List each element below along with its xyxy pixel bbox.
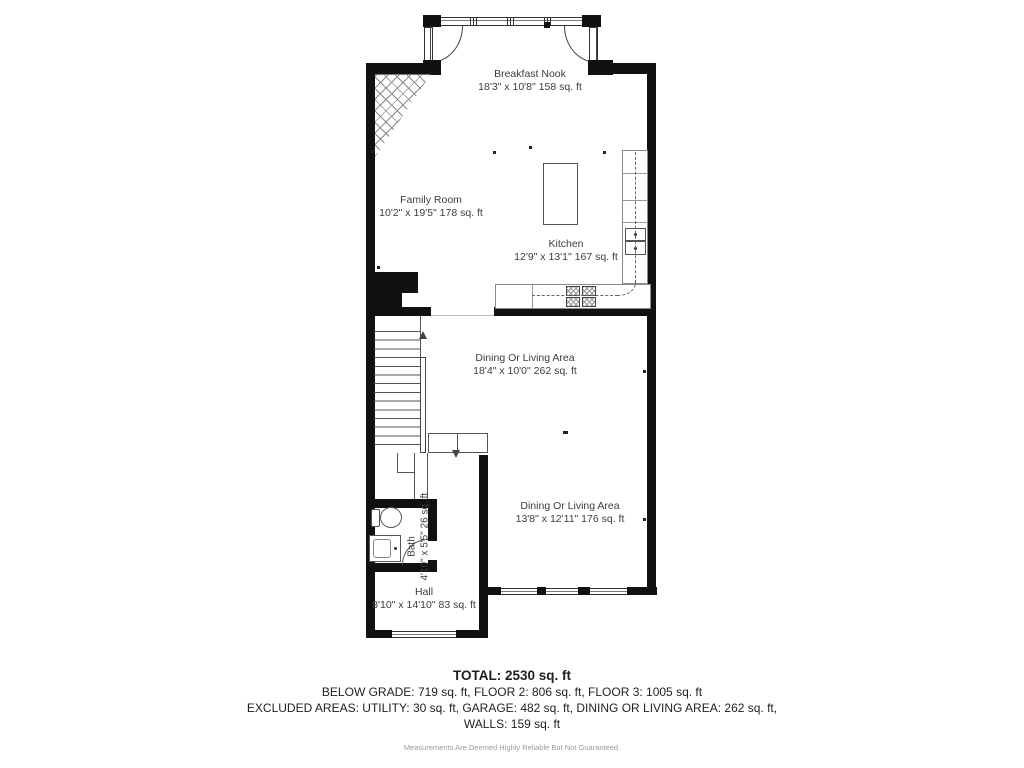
- summary-excluded: EXCLUDED AREAS: UTILITY: 30 sq. ft, GARA…: [0, 700, 1024, 716]
- kitchen-island: [543, 163, 578, 225]
- upper-cabinet-dashed-line: [635, 152, 636, 283]
- wall-marker: [643, 370, 646, 373]
- wall-dining-mullion: [578, 587, 590, 595]
- wall-hall-bottom-right: [456, 630, 488, 638]
- upper-cabinet-dashed-line: [532, 295, 618, 296]
- wall-dining-bottom-right: [627, 587, 657, 595]
- area-summary: TOTAL: 2530 sq. ft BELOW GRADE: 719 sq. …: [0, 668, 1024, 752]
- room-name: Kitchen: [466, 238, 666, 251]
- wall-marker: [529, 146, 532, 149]
- door-swing-nook-right: [564, 26, 597, 63]
- room-name: Breakfast Nook: [430, 68, 630, 81]
- wall-hall-bottom-left: [366, 630, 392, 638]
- room-dims: 13'8" x 12'11" 176 sq. ft: [470, 513, 670, 526]
- room-label-dining-lower: Dining Or Living Area 13'8" x 12'11" 176…: [470, 500, 670, 525]
- wall-marker: [377, 266, 380, 269]
- fireplace-chase: [374, 272, 418, 293]
- wall-marker: [563, 431, 568, 434]
- stair-direction-down-arrow: [452, 450, 460, 458]
- toilet-bowl: [380, 507, 402, 528]
- bath-faucet: [394, 547, 397, 550]
- room-name: Dining Or Living Area: [425, 352, 625, 365]
- room-label-bath-dims: 4'10" x 5'5" 26 sq. ft: [420, 495, 431, 581]
- room-label-dining-mid: Dining Or Living Area 18'4" x 10'0" 262 …: [425, 352, 625, 377]
- toilet-tank: [371, 509, 380, 527]
- stair-lower-tread: [397, 472, 415, 473]
- room-dims: 12'9" x 13'1" 167 sq. ft: [466, 251, 666, 264]
- room-dims: 18'3" x 10'8" 158 sq. ft: [430, 81, 630, 94]
- wall-step-left: [366, 63, 426, 74]
- window-mullion-tick: [507, 17, 516, 26]
- window-dining: [590, 588, 627, 595]
- wall-marker: [493, 151, 496, 154]
- sloped-ceiling-hatch: [375, 74, 431, 157]
- wall-marker: [544, 22, 550, 28]
- room-dims: 8'10" x 14'10" 83 sq. ft: [324, 599, 524, 612]
- summary-disclaimer: Measurements Are Deemed Highly Reliable …: [0, 743, 1024, 752]
- room-label-breakfast-nook: Breakfast Nook 18'3" x 10'8" 158 sq. ft: [430, 68, 630, 93]
- wall-marker: [371, 150, 374, 153]
- window-hall: [392, 631, 456, 638]
- room-label-bath-name: Bath: [407, 527, 418, 567]
- room-name: Family Room: [331, 194, 531, 207]
- summary-walls: WALLS: 159 sq. ft: [0, 716, 1024, 732]
- room-name: Dining Or Living Area: [470, 500, 670, 513]
- room-label-kitchen: Kitchen 12'9" x 13'1" 167 sq. ft: [466, 238, 666, 263]
- window-mullion-tick: [470, 17, 479, 26]
- staircase-treads: [374, 331, 421, 453]
- stair-lower-edge: [414, 453, 415, 499]
- window-dining: [546, 588, 578, 595]
- floorplan-page: Breakfast Nook 18'3" x 10'8" 158 sq. ft …: [0, 0, 1024, 768]
- summary-total: TOTAL: 2530 sq. ft: [0, 668, 1024, 684]
- stair-direction-up-arrow: [419, 331, 427, 339]
- counter-divider: [532, 285, 533, 308]
- room-label-hall: Hall 8'10" x 14'10" 83 sq. ft: [324, 586, 524, 611]
- wall-marker: [603, 151, 606, 154]
- door-swing-nook-left: [430, 26, 463, 63]
- room-name: Hall: [324, 586, 524, 599]
- summary-floors: BELOW GRADE: 719 sq. ft, FLOOR 2: 806 sq…: [0, 684, 1024, 700]
- room-name: Bath: [407, 527, 418, 567]
- room-label-family-room: Family Room 10'2" x 19'5" 178 sq. ft: [331, 194, 531, 219]
- room-dims: 10'2" x 19'5" 178 sq. ft: [331, 207, 531, 220]
- floor-edge-line: [431, 315, 494, 316]
- stair-lower-edge: [397, 453, 398, 473]
- wall-dining-mullion: [537, 587, 546, 595]
- cooktop-burner: [582, 297, 596, 307]
- bath-sink: [373, 539, 391, 558]
- room-dims: 4'10" x 5'5" 26 sq. ft: [420, 495, 431, 581]
- wall-divider-left: [366, 307, 431, 316]
- cooktop-burner: [566, 297, 580, 307]
- room-dims: 18'4" x 10'0" 262 sq. ft: [425, 365, 625, 378]
